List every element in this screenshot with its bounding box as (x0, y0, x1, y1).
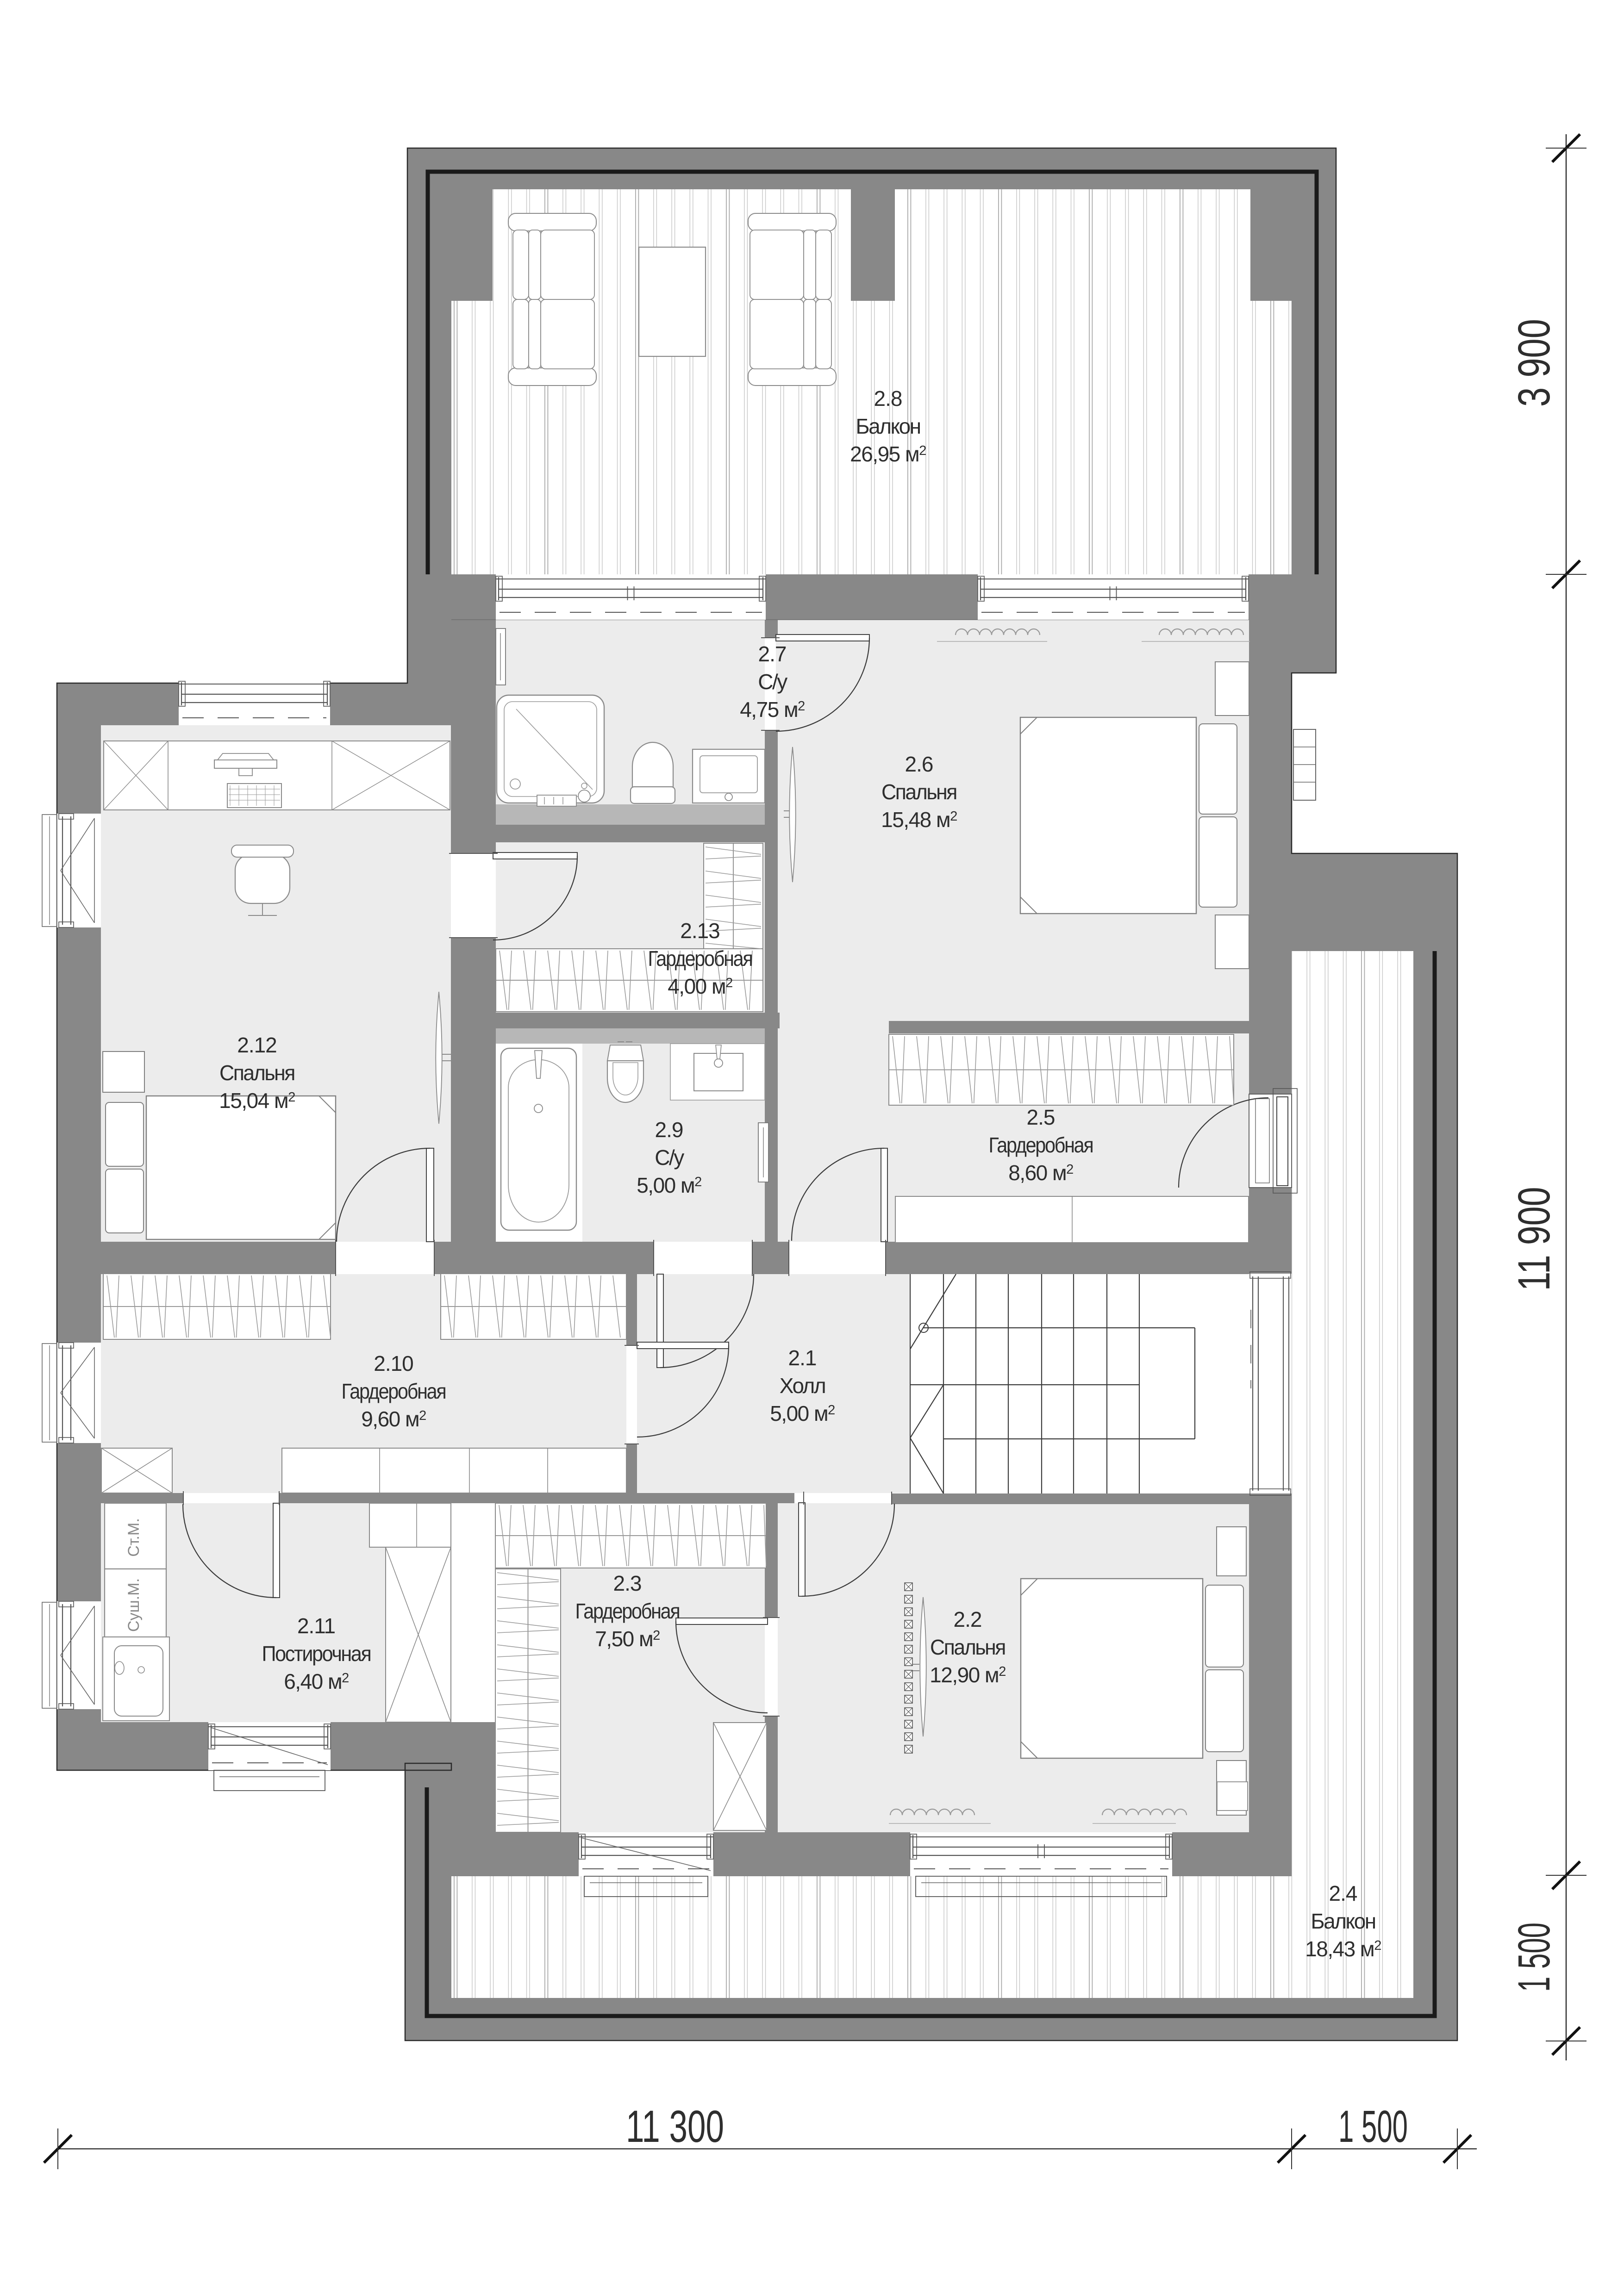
svg-text:2.4: 2.4 (1329, 1881, 1357, 1905)
svg-text:Суш.М.: Суш.М. (125, 1578, 143, 1632)
svg-text:2.12: 2.12 (237, 1033, 277, 1057)
svg-text:11 300: 11 300 (626, 2101, 724, 2152)
svg-text:Гардеробная: Гардеробная (575, 1599, 680, 1623)
svg-text:5,00 м2: 5,00 м2 (637, 1173, 701, 1197)
svg-text:2.1: 2.1 (788, 1346, 817, 1370)
svg-text:1 500: 1 500 (1509, 1923, 1559, 1992)
svg-text:Ст.М.: Ст.М. (125, 1518, 143, 1557)
svg-text:15,04 м2: 15,04 м2 (219, 1089, 295, 1113)
svg-text:2.10: 2.10 (374, 1351, 413, 1375)
svg-text:Постирочная: Постирочная (262, 1642, 371, 1666)
svg-text:Гардеробная: Гардеробная (342, 1379, 446, 1403)
svg-text:Балкон: Балкон (856, 414, 920, 438)
svg-text:12,90 м2: 12,90 м2 (930, 1663, 1006, 1687)
svg-text:2.7: 2.7 (758, 642, 787, 666)
svg-text:2.2: 2.2 (954, 1607, 982, 1631)
svg-text:5,00 м2: 5,00 м2 (770, 1401, 835, 1425)
svg-text:6,40 м2: 6,40 м2 (284, 1669, 349, 1693)
svg-text:Спальня: Спальня (930, 1635, 1005, 1659)
svg-text:4,00 м2: 4,00 м2 (668, 974, 732, 998)
svg-text:2.9: 2.9 (655, 1118, 683, 1142)
svg-text:2.5: 2.5 (1027, 1105, 1055, 1129)
svg-text:Спальня: Спальня (881, 780, 956, 804)
svg-text:8,60 м2: 8,60 м2 (1008, 1161, 1073, 1185)
svg-text:2.3: 2.3 (613, 1571, 642, 1595)
svg-text:15,48 м2: 15,48 м2 (881, 808, 957, 832)
svg-text:9,60 м2: 9,60 м2 (361, 1407, 426, 1431)
svg-text:Гардеробная: Гардеробная (648, 946, 752, 971)
svg-text:11 900: 11 900 (1509, 1187, 1559, 1291)
svg-text:С/у: С/у (655, 1145, 684, 1170)
svg-text:2.11: 2.11 (297, 1614, 335, 1638)
svg-text:2.13: 2.13 (680, 919, 720, 943)
svg-text:Гардеробная: Гардеробная (989, 1133, 1093, 1157)
svg-text:7,50 м2: 7,50 м2 (595, 1627, 660, 1651)
svg-text:26,95 м2: 26,95 м2 (850, 442, 926, 466)
svg-text:С/у: С/у (758, 670, 787, 694)
svg-text:2.8: 2.8 (874, 386, 902, 411)
svg-text:Холл: Холл (780, 1374, 825, 1398)
svg-text:1 500: 1 500 (1338, 2101, 1408, 2152)
svg-text:2.6: 2.6 (905, 752, 933, 776)
svg-text:18,43 м2: 18,43 м2 (1305, 1937, 1381, 1961)
svg-text:4,75 м2: 4,75 м2 (740, 697, 805, 722)
svg-text:Спальня: Спальня (219, 1061, 294, 1085)
svg-text:Балкон: Балкон (1311, 1909, 1375, 1933)
svg-text:3 900: 3 900 (1509, 319, 1559, 407)
